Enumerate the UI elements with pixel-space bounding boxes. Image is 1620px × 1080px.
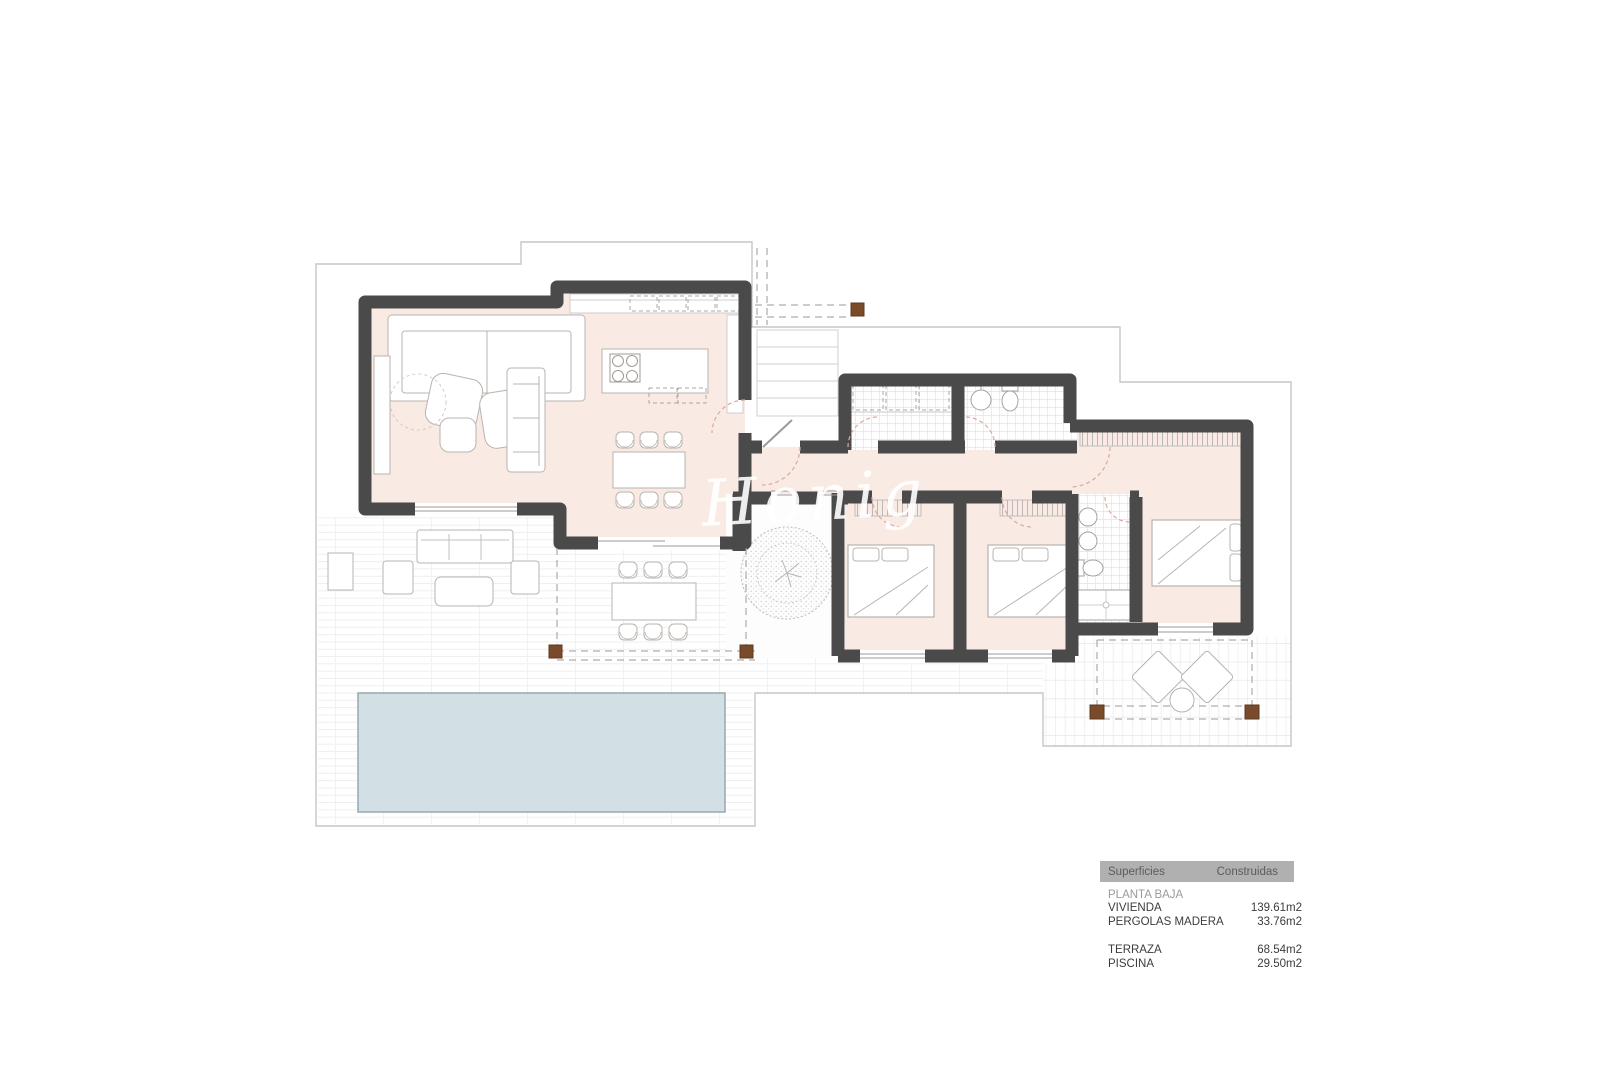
- outdoor-dining-set: [612, 562, 696, 640]
- sideboard: [374, 356, 390, 474]
- legend-table: Superficies Construidas PLANTA BAJA VIVI…: [1100, 861, 1294, 971]
- bedroom-1-bed: [848, 545, 934, 617]
- legend-row-terraza: TERRAZA 68.54m2: [1108, 944, 1294, 958]
- legend-spacer: [1108, 929, 1294, 944]
- floor-plan-drawing: [0, 0, 1620, 1080]
- legend-row-vivienda: VIVIENDA 139.61m2: [1108, 902, 1294, 916]
- bbq-unit: [328, 553, 353, 590]
- bedroom-2-bed: [988, 545, 1074, 617]
- swimming-pool: [358, 693, 725, 812]
- legend-col-superficies: Superficies: [1108, 866, 1165, 878]
- entrance-steps: [757, 330, 838, 416]
- sink-icon: [1079, 532, 1097, 550]
- legend-header: Superficies Construidas: [1100, 861, 1294, 882]
- legend-col-construidas: Construidas: [1217, 866, 1278, 878]
- sofa: [388, 315, 585, 401]
- sofa-2: [507, 368, 545, 472]
- sink-icon: [971, 390, 991, 410]
- legend-section-label: PLANTA BAJA: [1108, 889, 1294, 902]
- floor-plan-page: Honig Superficies Construidas PLANTA BAJ…: [0, 0, 1620, 1080]
- dining-set: [613, 432, 685, 508]
- shower-icon: [1078, 590, 1134, 620]
- legend-row-pergolas: PERGOLAS MADERA 33.76m2: [1108, 916, 1294, 930]
- toilet-icon: [1002, 384, 1018, 411]
- legend-row-piscina: PISCINA 29.50m2: [1108, 958, 1294, 972]
- sink-icon: [1079, 508, 1097, 526]
- entry-door-leaf: [763, 420, 792, 447]
- master-bed: [1152, 520, 1244, 586]
- toilet-icon: [1077, 560, 1103, 576]
